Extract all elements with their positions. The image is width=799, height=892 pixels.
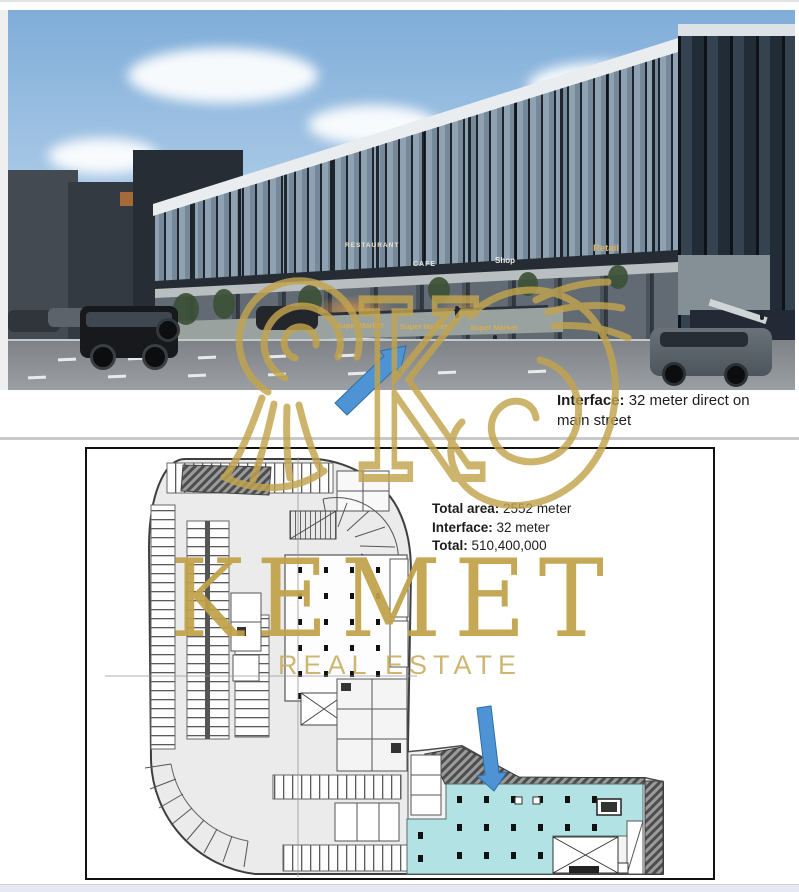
wall-band-right — [645, 781, 663, 874]
tree — [608, 265, 628, 289]
street-interface-note: Interface: 32 meter direct on main stree… — [557, 391, 797, 431]
plan-right-wing — [407, 746, 663, 874]
restaurant-sign: RESTAURANT — [345, 242, 399, 249]
street-interface-line2: main street — [557, 411, 797, 431]
total-area-value: 2552 meter — [499, 501, 571, 516]
bottom-strip — [0, 884, 799, 892]
building-photo: RESTAURANT CAFE Shop Retail Super Market… — [8, 10, 795, 390]
total-price-line: Total: 510,400,000 — [432, 537, 652, 556]
street-interface-line1: Interface: 32 meter direct on — [557, 391, 797, 411]
wall-band-top — [425, 747, 645, 784]
section-divider — [0, 437, 799, 440]
interface-label: Interface: — [432, 520, 493, 535]
interface-value: 32 meter — [493, 520, 550, 535]
cafe-sign: CAFE — [413, 261, 436, 268]
lane-marking — [528, 370, 546, 374]
tree — [428, 277, 450, 303]
lane-marking — [338, 354, 356, 358]
total-price-label: Total: — [432, 538, 468, 553]
tree — [518, 272, 538, 296]
car-sedan — [256, 306, 318, 330]
plan-pointer-arrow-icon — [477, 706, 507, 791]
plan-details-note: Total area: 2552 meter Interface: 32 met… — [432, 500, 652, 556]
tree — [213, 289, 235, 319]
total-price-value: 510,400,000 — [468, 538, 547, 553]
photo-left-margin — [0, 10, 8, 390]
lane-marking — [198, 356, 216, 360]
total-area-label: Total area: — [432, 501, 499, 516]
wheel — [724, 363, 748, 387]
street-interface-label: Interface: — [557, 392, 625, 409]
wheel — [142, 344, 168, 370]
super-market-sign: Super Market — [470, 323, 518, 332]
cloud — [128, 48, 318, 103]
lane-marking — [438, 371, 456, 375]
retail-sign: Retail — [593, 243, 619, 254]
lane-marking — [58, 358, 76, 362]
real-estate-flyer: RESTAURANT CAFE Shop Retail Super Market… — [0, 0, 799, 892]
wheel — [90, 344, 116, 370]
interface-line: Interface: 32 meter — [432, 519, 652, 538]
wheel — [662, 362, 686, 386]
floor-plan-container: Total area: 2552 meter Interface: 32 met… — [85, 447, 715, 880]
car-suv-windows — [660, 332, 748, 347]
lane-marking — [108, 375, 126, 379]
lane-marking — [268, 355, 286, 359]
pedestrian — [760, 310, 764, 320]
corner-tower-parapet — [678, 24, 795, 36]
lane-marking — [188, 374, 206, 378]
top-hairline — [0, 0, 799, 2]
lane-marking — [348, 372, 366, 376]
street-interface-value: 32 meter direct on — [625, 392, 750, 409]
spare-tire — [156, 318, 180, 342]
shop-sign: Shop — [495, 256, 515, 265]
total-area-line: Total area: 2552 meter — [432, 500, 652, 519]
pedestrian — [455, 306, 459, 318]
super-market-sign: Super Market — [336, 321, 384, 330]
super-market-sign: Super Market — [400, 322, 448, 331]
lane-marking — [28, 376, 46, 380]
lane-marking — [268, 373, 286, 377]
